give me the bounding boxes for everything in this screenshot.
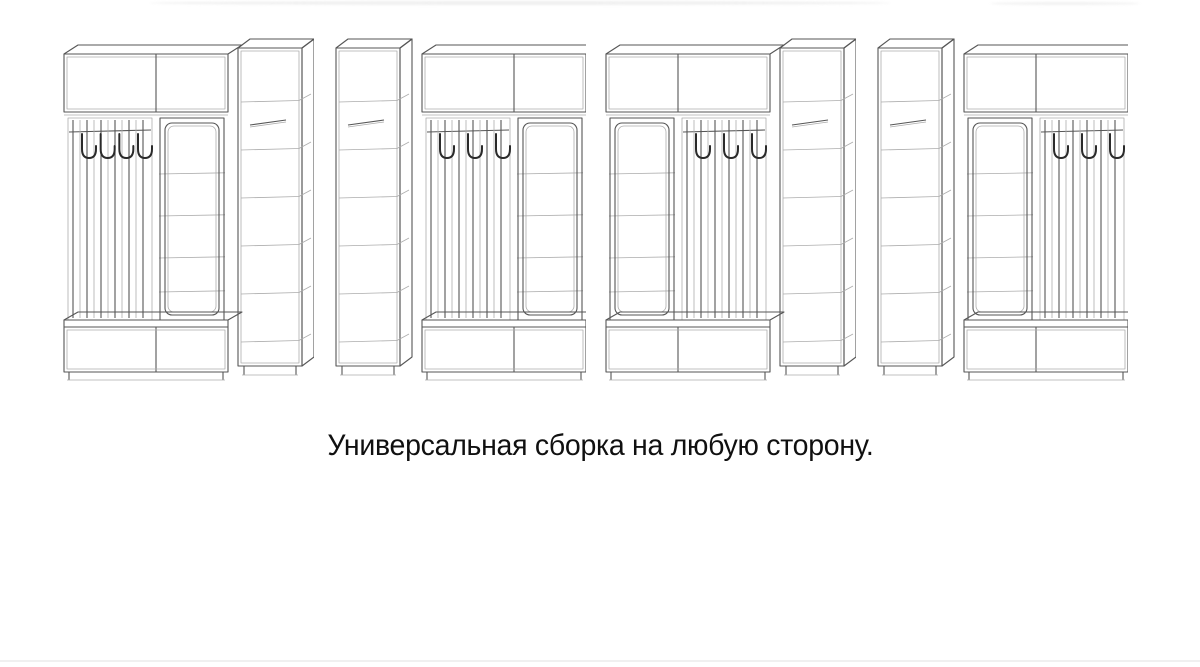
furniture-unit-variant-3: [604, 24, 856, 386]
wardrobe-wireframe-drawing: [604, 24, 856, 386]
product-illustration: Универсальная сборка на любую сторону.: [0, 0, 1200, 667]
caption: Универсальная сборка на любую сторону.: [0, 429, 1200, 463]
caption-text: Универсальная сборка на любую сторону.: [327, 429, 873, 463]
wardrobe-wireframe-drawing: [62, 24, 314, 386]
wardrobe-wireframe-drawing: [876, 24, 1128, 386]
furniture-unit-variant-2: [334, 24, 586, 386]
furniture-unit-variant-4: [876, 24, 1128, 386]
scan-artifact-top: [150, 1, 890, 5]
scan-artifact-bottom: [0, 660, 1200, 662]
furniture-unit-variant-1: [62, 24, 314, 386]
scan-artifact-top-right: [990, 2, 1140, 5]
wardrobe-wireframe-drawing: [334, 24, 586, 386]
